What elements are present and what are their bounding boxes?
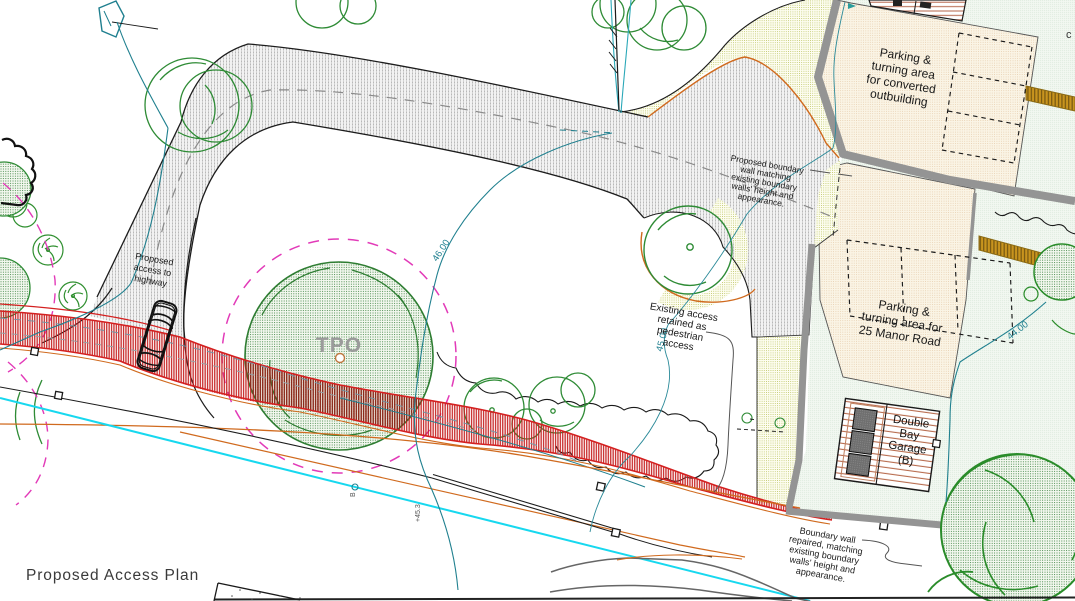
svg-text:+45.3: +45.3 xyxy=(415,504,422,522)
svg-text:c: c xyxy=(1066,29,1072,41)
svg-text:Proposed Access Plan: Proposed Access Plan xyxy=(26,567,199,584)
svg-text:B: B xyxy=(350,492,357,497)
svg-text:(B): (B) xyxy=(897,454,914,468)
svg-text:TPO: TPO xyxy=(316,334,362,357)
